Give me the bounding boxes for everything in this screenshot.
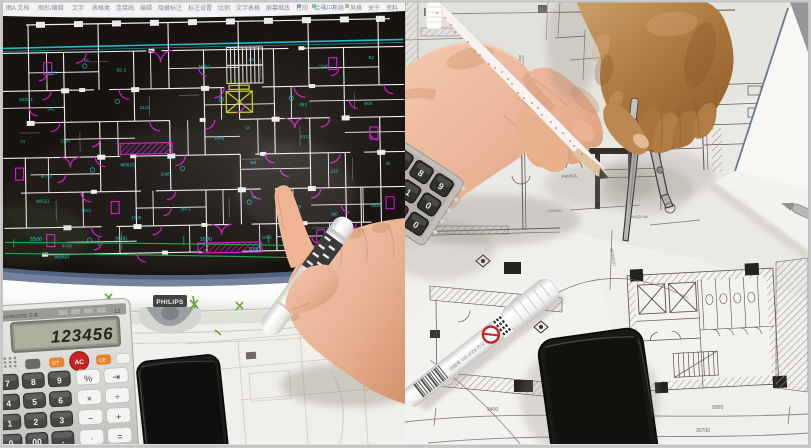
svg-text:842: 842 [47, 107, 55, 112]
svg-text:7: 7 [5, 378, 11, 388]
svg-text:8: 8 [31, 377, 37, 387]
svg-text:关于: 关于 [368, 4, 380, 12]
svg-text:6: 6 [58, 395, 64, 405]
svg-text:16: 16 [84, 58, 90, 63]
svg-text:9: 9 [57, 375, 63, 385]
svg-text:÷: ÷ [115, 392, 121, 402]
svg-text:编辑: 编辑 [140, 4, 152, 12]
svg-text:连接线: 连接线 [116, 4, 134, 12]
svg-text:12: 12 [114, 309, 120, 315]
svg-text:屏幕缩放: 屏幕缩放 [266, 4, 290, 12]
svg-text:2: 2 [33, 417, 39, 427]
svg-text:B1-2: B1-2 [117, 67, 127, 72]
svg-text:标注设置: 标注设置 [188, 4, 212, 12]
svg-text:GT: GT [52, 360, 59, 366]
svg-text:4: 4 [6, 398, 12, 408]
svg-text:风格: 风格 [350, 4, 362, 12]
svg-text:9000: 9000 [712, 405, 723, 411]
svg-text:3125: 3125 [47, 70, 58, 75]
svg-text:3: 3 [59, 415, 65, 425]
svg-text:文字表格: 文字表格 [236, 4, 260, 12]
svg-text:⇥: ⇥ [112, 372, 121, 382]
svg-text:文字: 文字 [72, 4, 84, 12]
svg-text:表格类: 表格类 [92, 4, 110, 12]
svg-text:AC: AC [74, 359, 84, 367]
svg-text:123456: 123456 [50, 324, 114, 347]
svg-text:1916: 1916 [60, 138, 71, 143]
svg-text:比例: 比例 [218, 4, 230, 12]
svg-text:图形/编辑: 图形/编辑 [38, 4, 64, 12]
svg-text:3400: 3400 [487, 407, 498, 413]
svg-text:隐藏标注: 隐藏标注 [158, 4, 182, 12]
svg-text:PHILIPS: PHILIPS [156, 299, 184, 306]
svg-text:30700: 30700 [696, 428, 710, 434]
svg-text:CE: CE [99, 357, 107, 363]
svg-text:IQ1G: IQ1G [323, 5, 335, 11]
svg-text:+: + [116, 412, 122, 422]
svg-text:·: · [90, 433, 94, 443]
svg-text:5: 5 [32, 397, 38, 407]
svg-text:−: − [88, 413, 94, 423]
svg-text:74: 74 [20, 139, 26, 144]
svg-text:资料: 资料 [386, 4, 398, 12]
svg-text:%: % [84, 373, 93, 383]
svg-text:×: × [87, 393, 93, 403]
svg-text:图A 文档: 图A 文档 [6, 4, 29, 12]
svg-text:1: 1 [7, 418, 13, 428]
svg-text:=: = [117, 432, 123, 442]
svg-text:M0521: M0521 [19, 97, 33, 102]
